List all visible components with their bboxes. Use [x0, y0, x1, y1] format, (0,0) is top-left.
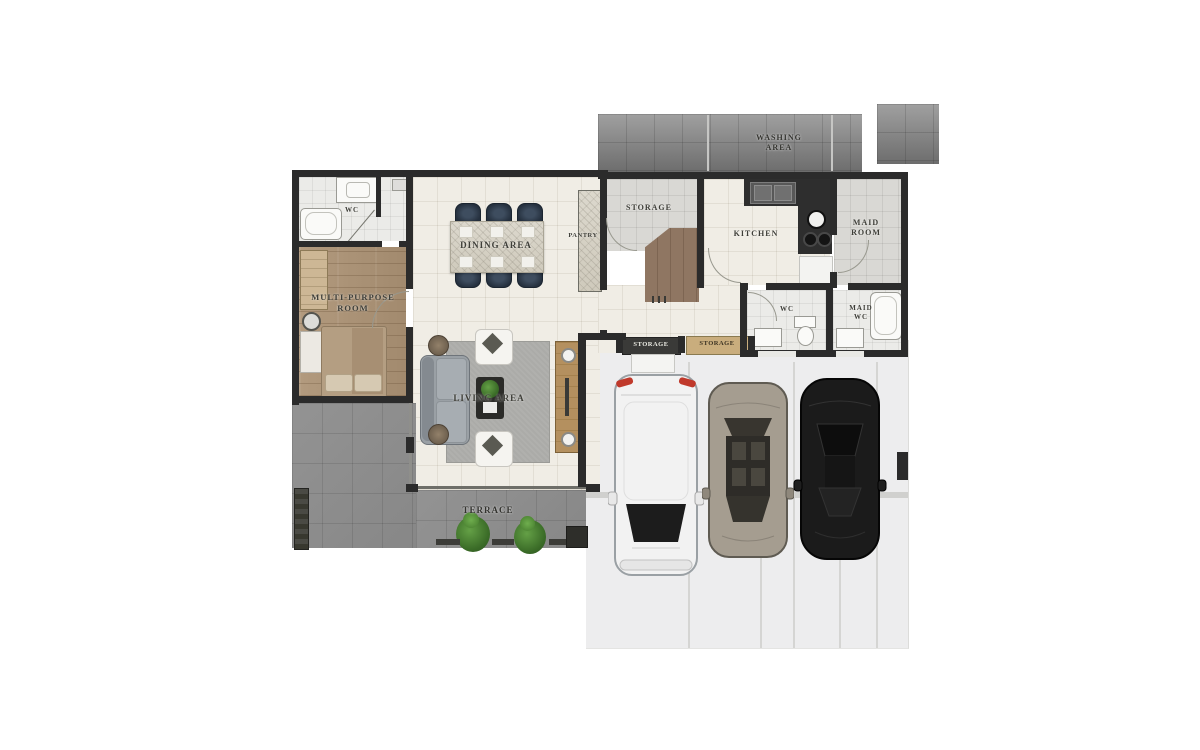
parking-line: [760, 556, 762, 648]
closet-step-mark: [658, 296, 660, 303]
wall: [406, 177, 413, 241]
terrace-threshold: [492, 539, 514, 545]
label-maid-wc: MAID WC: [844, 304, 878, 322]
wall: [598, 172, 908, 179]
toilet-bowl: [797, 326, 814, 346]
wall: [292, 241, 382, 247]
side-mirror: [608, 492, 617, 505]
door-threshold: [758, 351, 796, 357]
storage-shelf: [631, 354, 675, 373]
terrace-floor: [292, 403, 416, 548]
wall: [586, 484, 600, 492]
label-wc-service: WC: [774, 305, 800, 314]
stove-burner: [803, 232, 818, 247]
side-mirror: [878, 480, 886, 491]
glass-door-line: [418, 486, 588, 489]
terrace-plant: [520, 516, 535, 531]
stove-burner: [807, 210, 826, 229]
wall: [697, 177, 704, 252]
label-storage-room: STORAGE: [618, 203, 680, 213]
side-mirror: [702, 488, 710, 499]
wall: [376, 177, 381, 217]
wall: [616, 337, 623, 353]
plate: [459, 256, 473, 268]
wall: [826, 283, 833, 357]
plate: [521, 226, 535, 238]
label-pantry: PANTRY: [564, 232, 602, 240]
label-storage-cabinet-right: STORAGE: [688, 340, 746, 348]
label-wc-main: WC: [338, 206, 366, 215]
bed-pillow: [325, 374, 353, 392]
console-speaker: [561, 432, 576, 447]
sink: [754, 328, 782, 347]
wall: [406, 241, 413, 289]
sink-basin: [346, 182, 370, 198]
kitchen-sink-basin: [754, 185, 772, 201]
kitchen-sink-basin: [774, 185, 792, 201]
label-dining-area: DINING AREA: [452, 240, 540, 252]
car-black-coupe: [793, 376, 887, 562]
terrace-planter: [294, 488, 309, 550]
label-multi-purpose: MULTI-PURPOSE ROOM: [306, 292, 400, 314]
sink: [836, 328, 864, 348]
windshield: [626, 504, 686, 542]
door-threshold: [836, 351, 864, 357]
plate: [490, 226, 504, 238]
plate: [490, 256, 504, 268]
wall: [678, 336, 685, 353]
outdoor-pad: [877, 104, 939, 164]
side-table-round: [428, 335, 449, 356]
label-kitchen: KITCHEN: [724, 229, 788, 239]
plate: [459, 226, 473, 238]
parking-line: [839, 556, 841, 648]
label-living-area: LIVING AREA: [450, 393, 528, 405]
wall: [406, 484, 418, 492]
side-table-round: [428, 424, 449, 445]
plate: [521, 256, 535, 268]
floor-plan: WASHING AREA STORAGE KITCHEN MAID ROOM P…: [0, 0, 1200, 750]
wall: [292, 170, 299, 405]
bathtub-inner: [305, 212, 337, 235]
washing-post: [707, 115, 709, 171]
wall: [406, 327, 413, 396]
garage-pillar: [897, 452, 908, 480]
bed-pillow: [354, 374, 382, 392]
rear-window: [724, 418, 772, 436]
rear-window: [817, 424, 863, 456]
washing-area-floor: [598, 114, 862, 172]
terrace-box: [566, 526, 588, 548]
wall: [406, 437, 414, 453]
label-maid-room: MAID ROOM: [846, 218, 886, 239]
pantry-counter: [578, 190, 602, 292]
wall: [748, 336, 755, 353]
car-tan-sedan: [702, 380, 794, 560]
fan: [302, 312, 321, 331]
wall: [901, 177, 908, 357]
closet-step-mark: [652, 296, 654, 303]
label-terrace: TERRACE: [454, 505, 522, 517]
label-storage-cabinet-left: STORAGE: [624, 341, 678, 349]
closet-step-mark: [664, 296, 666, 303]
wall: [292, 170, 608, 177]
label-washing-area: WASHING AREA: [750, 133, 808, 154]
car-white-suv: [608, 372, 704, 578]
wall: [766, 283, 830, 290]
wall: [292, 396, 413, 403]
kitchen-cabinet: [799, 256, 833, 286]
wall: [578, 337, 586, 487]
wall: [830, 177, 837, 235]
wall: [848, 283, 908, 290]
side-mirror: [794, 480, 802, 491]
terrace-threshold: [436, 539, 460, 545]
washing-post: [831, 115, 833, 171]
wall: [697, 252, 704, 288]
console-speaker: [561, 348, 576, 363]
console-slot: [565, 378, 569, 416]
